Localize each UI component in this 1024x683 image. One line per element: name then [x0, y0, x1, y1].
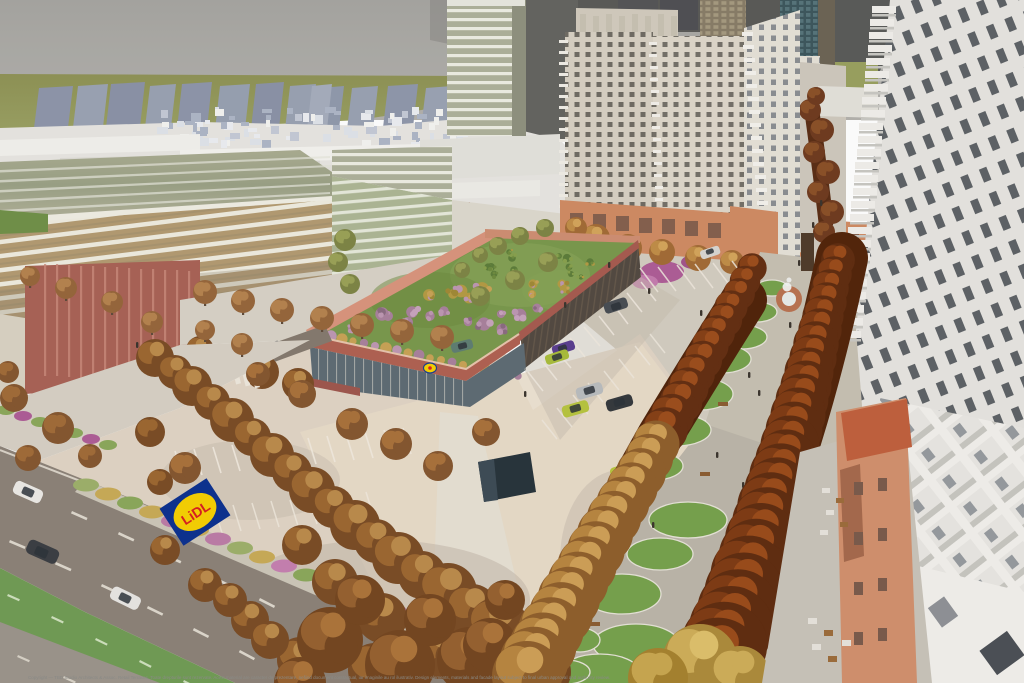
svg-text:Copyright — TBD Studio Archite: Copyright — TBD Studio Architects & Asso…: [28, 675, 610, 680]
